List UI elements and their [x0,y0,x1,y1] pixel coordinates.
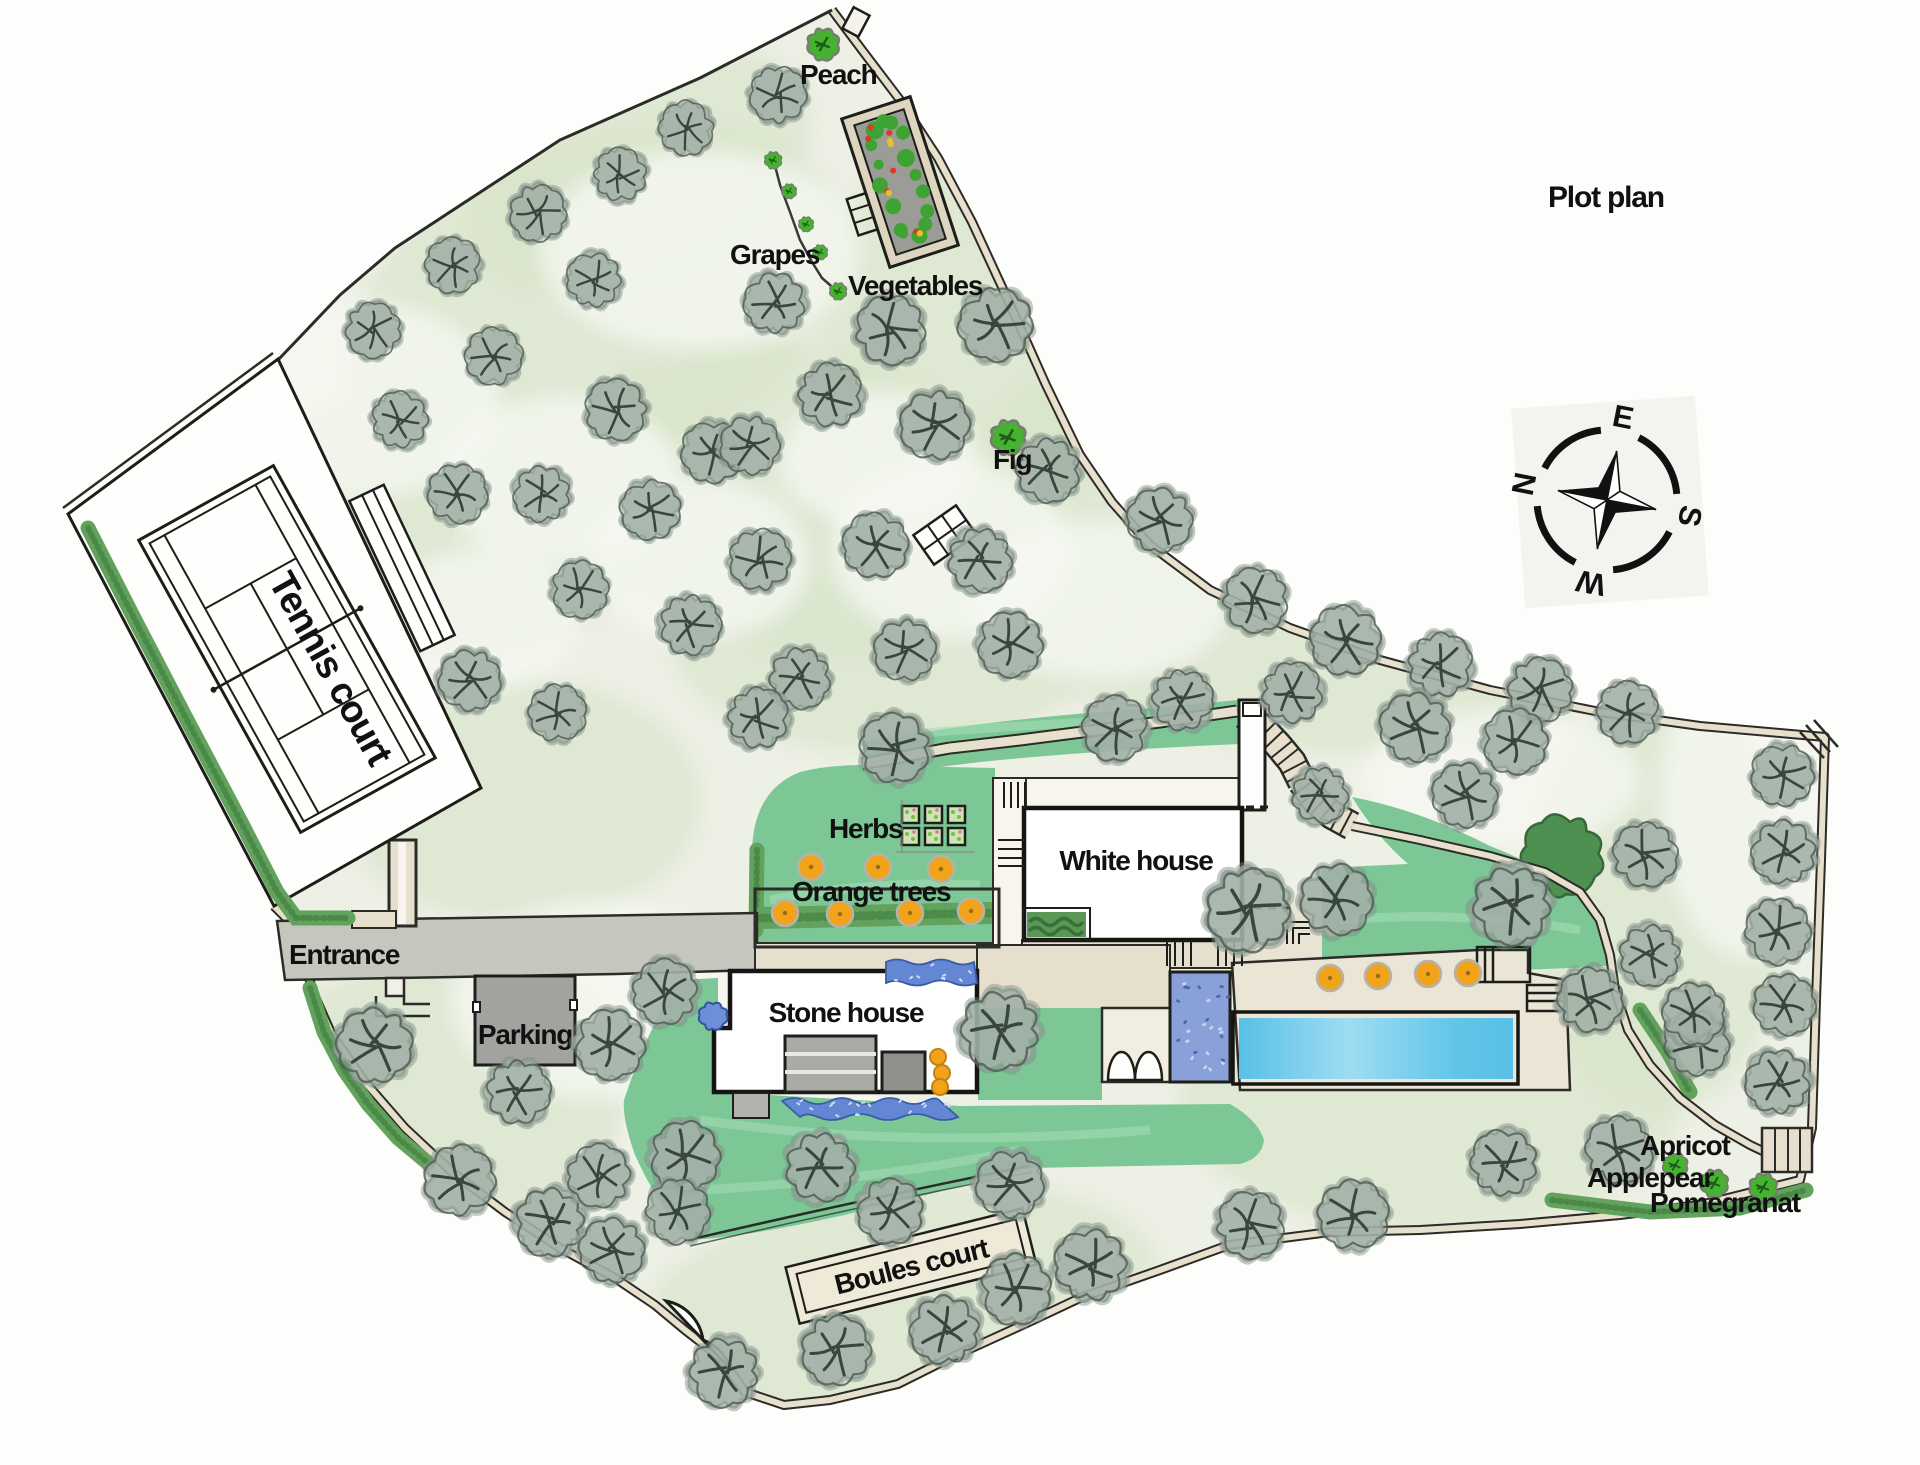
svg-text:Apricot: Apricot [1640,1130,1730,1161]
svg-text:Orange trees: Orange trees [792,876,951,907]
svg-text:Parking: Parking [478,1019,572,1050]
svg-text:Entrance: Entrance [289,939,400,970]
svg-text:Plot plan: Plot plan [1548,181,1664,214]
svg-text:Grapes: Grapes [730,239,820,270]
svg-text:Vegetables: Vegetables [848,270,983,301]
svg-text:Peach: Peach [800,59,877,90]
svg-text:White house: White house [1059,845,1213,876]
svg-text:Herbs: Herbs [829,813,903,844]
svg-text:Stone house: Stone house [769,997,924,1028]
svg-text:Fig: Fig [993,444,1031,475]
svg-text:Pomegranat: Pomegranat [1650,1187,1801,1218]
